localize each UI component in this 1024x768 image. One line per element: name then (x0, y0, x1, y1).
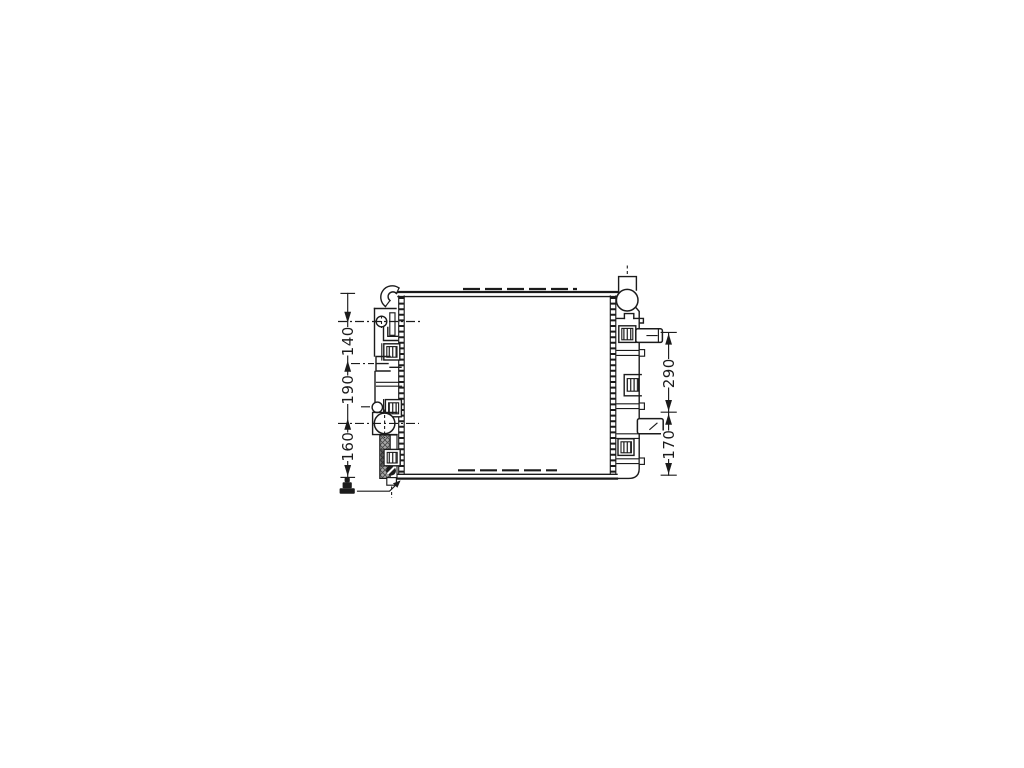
right-fitting-block-1 (619, 326, 636, 343)
drain-plug (386, 466, 396, 476)
middle-connector-port (372, 402, 382, 412)
dim-label-160: 160 (339, 432, 357, 462)
bracket-slot (390, 313, 395, 336)
arrow-down-290 (665, 400, 672, 411)
radiator-core (398, 289, 617, 479)
inlet-pipe (636, 329, 663, 343)
arrow-down-160 (344, 465, 351, 476)
left-tank-rib (377, 382, 402, 386)
right-rib-3 (617, 434, 639, 439)
right-dimension-line: 290 170 (660, 332, 678, 475)
left-fitting-block-3 (382, 449, 400, 466)
arrow-up-160 (344, 419, 351, 430)
left-tank (372, 286, 401, 498)
right-fitting-block-3 (618, 439, 634, 456)
mounting-hook (381, 286, 399, 307)
dim-label-290: 290 (660, 358, 678, 388)
right-crimp-strip (610, 296, 616, 474)
arrow-down-170 (665, 463, 672, 474)
right-rib-1 (617, 350, 639, 355)
left-fitting-block-1 (382, 344, 400, 360)
dim-label-190: 190 (339, 375, 357, 405)
arrow-up-170 (665, 414, 672, 425)
right-tank (616, 266, 663, 479)
filler-cap (616, 289, 638, 311)
arrow-up-190 (344, 361, 351, 372)
left-crimp-strip (399, 296, 405, 474)
radiator-technical-drawing: 140 190 160 290 170 (0, 0, 1024, 768)
arrow-up-290 (665, 333, 672, 344)
core-face (404, 296, 610, 474)
drain-plug-icon (340, 477, 355, 493)
right-rib-4 (617, 459, 639, 464)
dim-label-140: 140 (339, 326, 357, 356)
dim-label-170: 170 (660, 430, 678, 460)
right-rib-2 (617, 404, 639, 409)
